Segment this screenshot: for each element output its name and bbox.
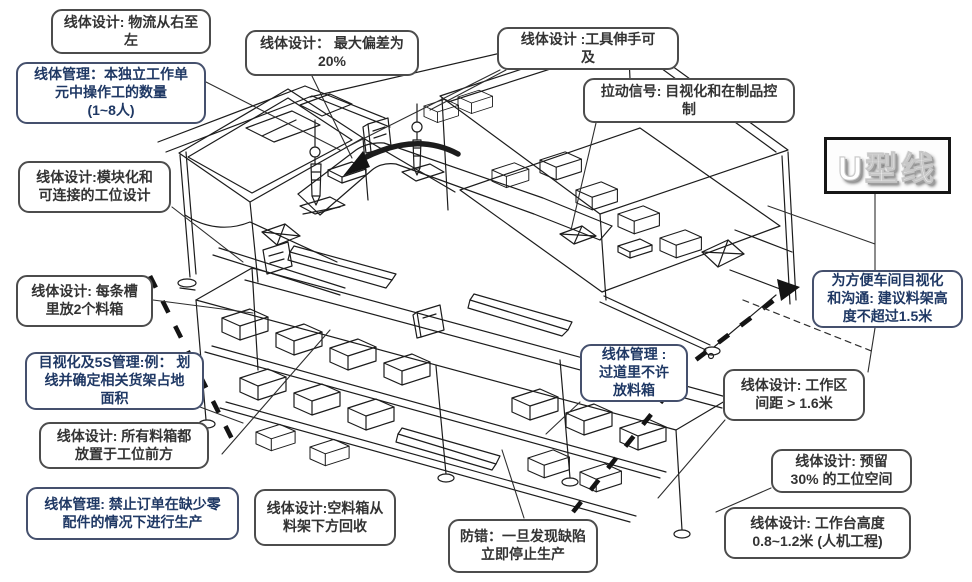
leader-lines [153, 70, 875, 518]
diagram-title: U型线 [824, 137, 951, 194]
kanban-cards [363, 118, 444, 338]
callout-two-bins-per-slot: 线体设计: 每条槽 里放2个料箱 [16, 275, 153, 327]
callout-bench-height: 线体设计: 工作台高度 0.8~1.2米 (人机工程) [724, 507, 911, 559]
u-line-diagram: U型线 线体设计: 物流从右至 左 线体管理：本独立工作单 元中操作工的数量 (… [0, 0, 972, 582]
callout-reserve-station-space: 线体设计: 预留 30% 的工位空间 [771, 449, 912, 493]
callout-tools-within-reach: 线体设计 :工具伸手可 及 [497, 27, 679, 70]
callout-stop-on-defect: 防错：一旦发现缺陷 立即停止生产 [448, 519, 598, 573]
callout-pull-signal: 拉动信号: 目视化和在制品控 制 [583, 78, 795, 123]
callout-modular-stations: 线体设计:模块化和 可连接的工位设计 [18, 161, 171, 213]
callout-flow-direction: 线体设计: 物流从右至 左 [51, 9, 211, 54]
callout-no-missing-parts: 线体管理: 禁止订单在缺少零 配件的情况下进行生产 [26, 487, 239, 540]
callout-operator-count: 线体管理：本独立工作单 元中操作工的数量 (1~8人) [16, 62, 206, 124]
callout-no-bins-in-aisle: 线体管理 : 过道里不许 放料箱 [580, 344, 688, 402]
callout-rack-height-limit: 为方便车间目视化 和沟通: 建议料架高 度不超过1.5米 [812, 270, 963, 328]
callout-5s-floor-marking: 目视化及5S管理:例： 划 线并确定相关货架占地 面积 [25, 352, 204, 410]
callout-bins-in-front: 线体设计: 所有料箱都 放置于工位前方 [39, 422, 209, 469]
callout-empty-bin-return: 线体设计:空料箱从 料架下方回收 [254, 489, 396, 546]
callout-max-deviation: 线体设计： 最大偏差为 20% [245, 30, 419, 76]
callout-workzone-spacing: 线体设计: 工作区 间距 > 1.6米 [723, 369, 865, 421]
